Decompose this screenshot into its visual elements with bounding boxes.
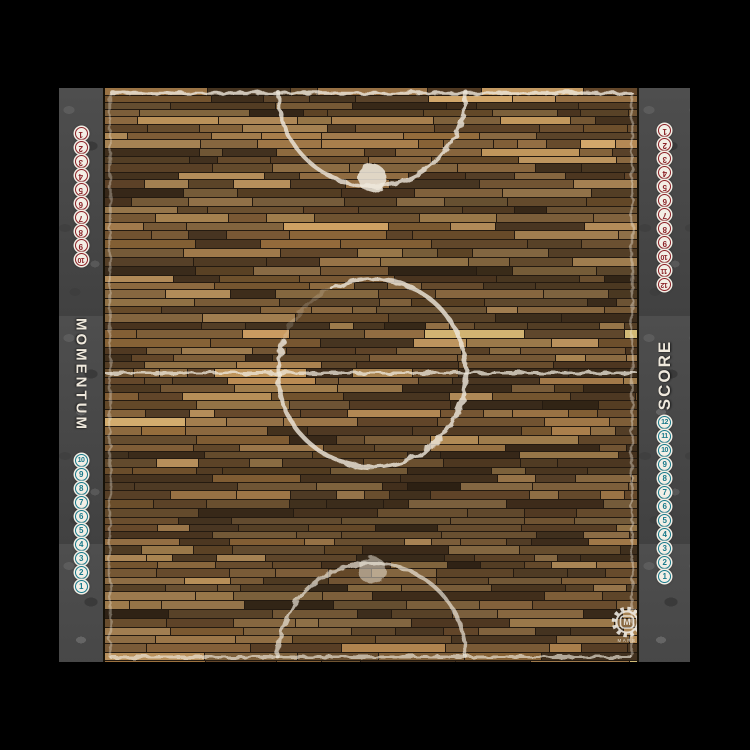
momentum-red-pip-5: 5 [75, 183, 88, 196]
momentum-teal-pip-9: 9 [75, 468, 88, 481]
score-red-pip-4: 4 [658, 166, 671, 179]
score-teal-pip-5: 5 [658, 514, 671, 527]
momentum-teal-pip-8: 8 [75, 482, 88, 495]
score-red-pip-10: 10 [658, 250, 671, 263]
momentum-teal-pip-3: 3 [75, 552, 88, 565]
momentum-teal-pip-10: 10 [75, 454, 88, 467]
momentum-red-pip-8: 8 [75, 225, 88, 238]
momentum-red-pip-2: 2 [75, 141, 88, 154]
score-red-pip-9: 9 [658, 236, 671, 249]
logo-caption: MARS [617, 638, 636, 643]
momentum-teal-pip-5: 5 [75, 524, 88, 537]
score-teal-pip-7: 7 [658, 486, 671, 499]
score-teal-pip-1: 1 [658, 570, 671, 583]
momentum-red-pip-7: 7 [75, 211, 88, 224]
score-red-pip-5: 5 [658, 180, 671, 193]
score-red-pip-1: 1 [658, 124, 671, 137]
score-red-pip-6: 6 [658, 194, 671, 207]
score-teal-pip-6: 6 [658, 500, 671, 513]
score-teal-pip-11: 11 [658, 430, 671, 443]
score-red-pip-3: 3 [658, 152, 671, 165]
score-teal-pip-4: 4 [658, 528, 671, 541]
momentum-red-pip-4: 4 [75, 169, 88, 182]
score-track-teal: 121110987654321 [639, 416, 690, 583]
momentum-track-red: 12345678910 [59, 127, 103, 266]
score-label: SCORE [655, 340, 675, 410]
score-teal-pip-9: 9 [658, 458, 671, 471]
score-strip: 123456789101112 SCORE 121110987654321 [637, 88, 690, 662]
momentum-red-pip-9: 9 [75, 239, 88, 252]
momentum-teal-pip-1: 1 [75, 580, 88, 593]
score-red-pip-7: 7 [658, 208, 671, 221]
momentum-strip: 12345678910 MOMENTUM 10987654321 [59, 88, 105, 662]
momentum-label: MOMENTUM [73, 318, 90, 432]
score-track-red: 123456789101112 [639, 124, 690, 291]
momentum-teal-pip-7: 7 [75, 496, 88, 509]
game-mat-photo: M MARS 12345678910 MOMENTUM 10987654321 … [0, 0, 750, 750]
momentum-track-teal: 10987654321 [59, 454, 103, 593]
score-teal-pip-3: 3 [658, 542, 671, 555]
score-red-pip-2: 2 [658, 138, 671, 151]
score-teal-pip-2: 2 [658, 556, 671, 569]
momentum-red-pip-6: 6 [75, 197, 88, 210]
score-red-pip-8: 8 [658, 222, 671, 235]
momentum-teal-pip-6: 6 [75, 510, 88, 523]
score-red-pip-12: 12 [658, 278, 671, 291]
score-teal-pip-8: 8 [658, 472, 671, 485]
momentum-teal-pip-4: 4 [75, 538, 88, 551]
momentum-red-pip-1: 1 [75, 127, 88, 140]
score-teal-pip-10: 10 [658, 444, 671, 457]
score-teal-pip-12: 12 [658, 416, 671, 429]
pitch-mat: M MARS 12345678910 MOMENTUM 10987654321 … [59, 88, 690, 662]
logo-letter: M [623, 617, 631, 627]
wooden-court: M MARS [105, 88, 637, 662]
momentum-teal-pip-2: 2 [75, 566, 88, 579]
score-red-pip-11: 11 [658, 264, 671, 277]
momentum-red-pip-10: 10 [75, 253, 88, 266]
momentum-red-pip-3: 3 [75, 155, 88, 168]
bottom-ball-spot [358, 556, 386, 584]
top-ball-spot [358, 164, 387, 193]
